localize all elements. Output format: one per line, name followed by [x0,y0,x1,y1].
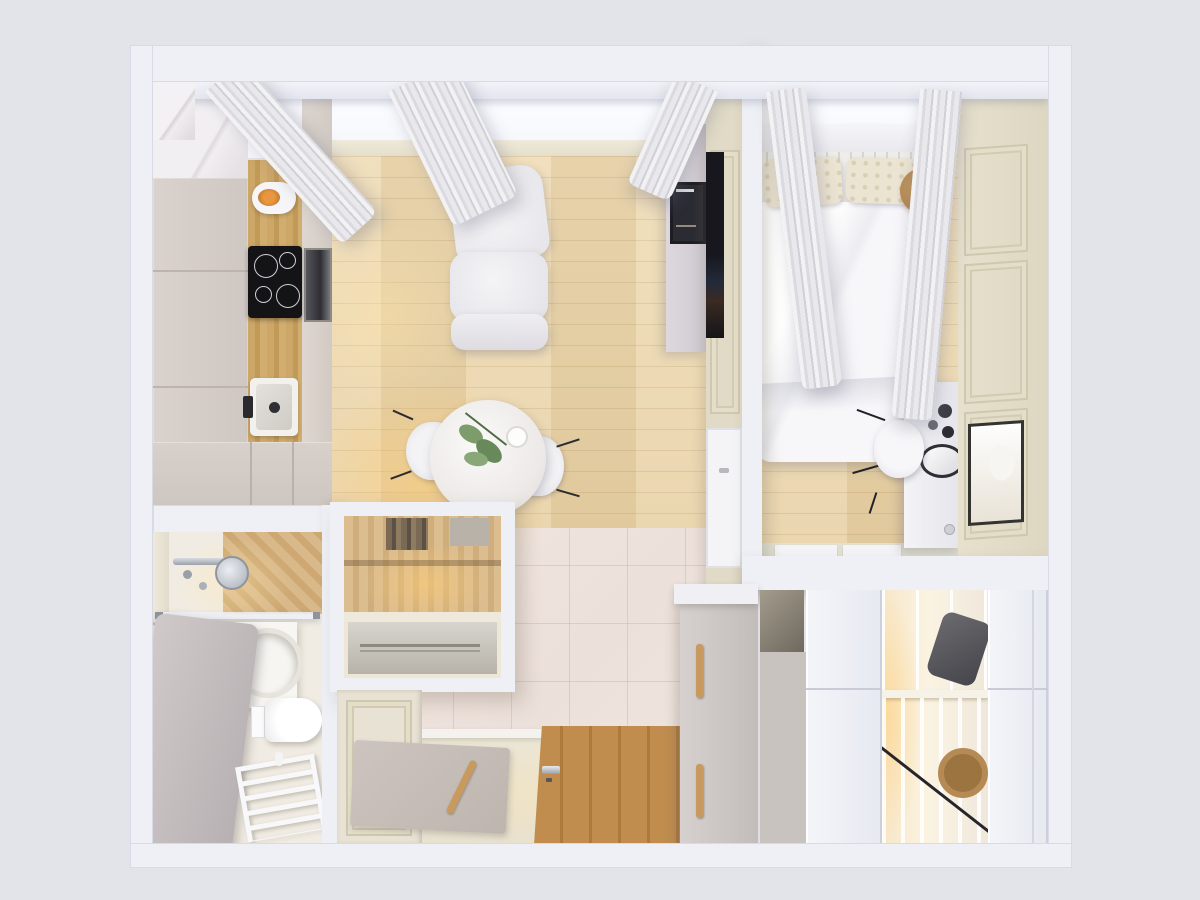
closet-side-panel [760,652,806,845]
shower-knob-1 [183,570,192,579]
burner-3 [255,286,272,303]
poster-art [676,189,694,192]
corner-pillar-marble [153,82,195,140]
doormat [350,740,510,834]
built-in-oven [304,248,332,322]
entry-door-lock [546,778,552,782]
sink-faucet [243,396,253,418]
sofa-seat-cushion [450,252,548,322]
wardrobe-panel-2 [964,260,1028,404]
nook-books [386,518,428,550]
shower-knob-2 [199,582,207,590]
outer-wall-bottom [130,843,1072,868]
window-beam [170,82,1048,99]
outer-wall-right [1048,45,1072,868]
wall-hung-toilet [265,698,322,742]
hall-cabinet [680,602,758,845]
sofa-armrest [451,314,548,350]
bench-rail-2 [360,650,480,652]
closet-basket [938,748,988,798]
burner-2 [279,252,296,269]
sink-drain [269,402,280,413]
divider-wall-living-bedroom [742,45,762,587]
cabinet-handle-bottom [696,764,703,818]
kitchen-sink [250,378,298,436]
burner-4 [276,284,300,308]
closet-right-door-seam-v [1032,590,1034,843]
towel-ladder [235,754,322,843]
cooktop [248,246,302,318]
desk-organizer-2 [928,420,938,430]
outer-wall-left [130,45,153,868]
mirror-reflection [989,444,1015,482]
bench-rail-1 [360,644,480,647]
wall-tv [706,152,724,338]
closet-right-doors [988,590,1048,843]
desk-knob [944,524,955,535]
desk-organizer-1 [938,404,952,418]
desk-chair-seat [874,420,924,478]
closet-left-door-seam [806,688,882,690]
nook-ledge [344,612,501,622]
bathroom [153,532,322,844]
wall-kitchen-bathroom [153,505,340,533]
niche-door-handle [719,468,729,473]
closet-left-doors [806,590,882,843]
poster-caption [676,225,696,227]
hall-cabinet-top-board [674,584,758,604]
closet-right-door-seam [988,688,1048,690]
shower-head [215,556,249,590]
dining-table [430,400,546,516]
nook-shelf-shadow [344,560,501,566]
closet-shelving [882,590,988,843]
kitchen-cabinet-seam-1 [153,270,248,272]
entry-door-handle [542,766,560,774]
storage-nook-interior [344,516,501,678]
bedroom-wall-mirror [968,420,1024,526]
wall-bedroom-closet [742,556,1048,590]
desk-organizer-3 [942,426,954,438]
kitchen-cabinet-seam-2 [153,386,248,388]
towel-ladder-pipe [275,752,283,766]
apartment-floorplan-render [0,0,1200,900]
wardrobe-panel-1 [964,144,1028,256]
partition-niche-door [706,428,742,568]
kettle-opening [258,189,280,206]
cabinet-handle-top [696,644,703,698]
entry-door [534,726,692,845]
closet-shelf-board [882,690,988,698]
toilet-flush-plate [251,706,265,738]
burner-1 [254,254,278,278]
outer-wall-top [130,45,1072,82]
table-cup [506,426,528,448]
framed-poster [670,182,706,244]
closet-dark-niche [760,590,804,652]
nook-storage-box [450,518,490,546]
nook-metal-bench [348,622,497,674]
